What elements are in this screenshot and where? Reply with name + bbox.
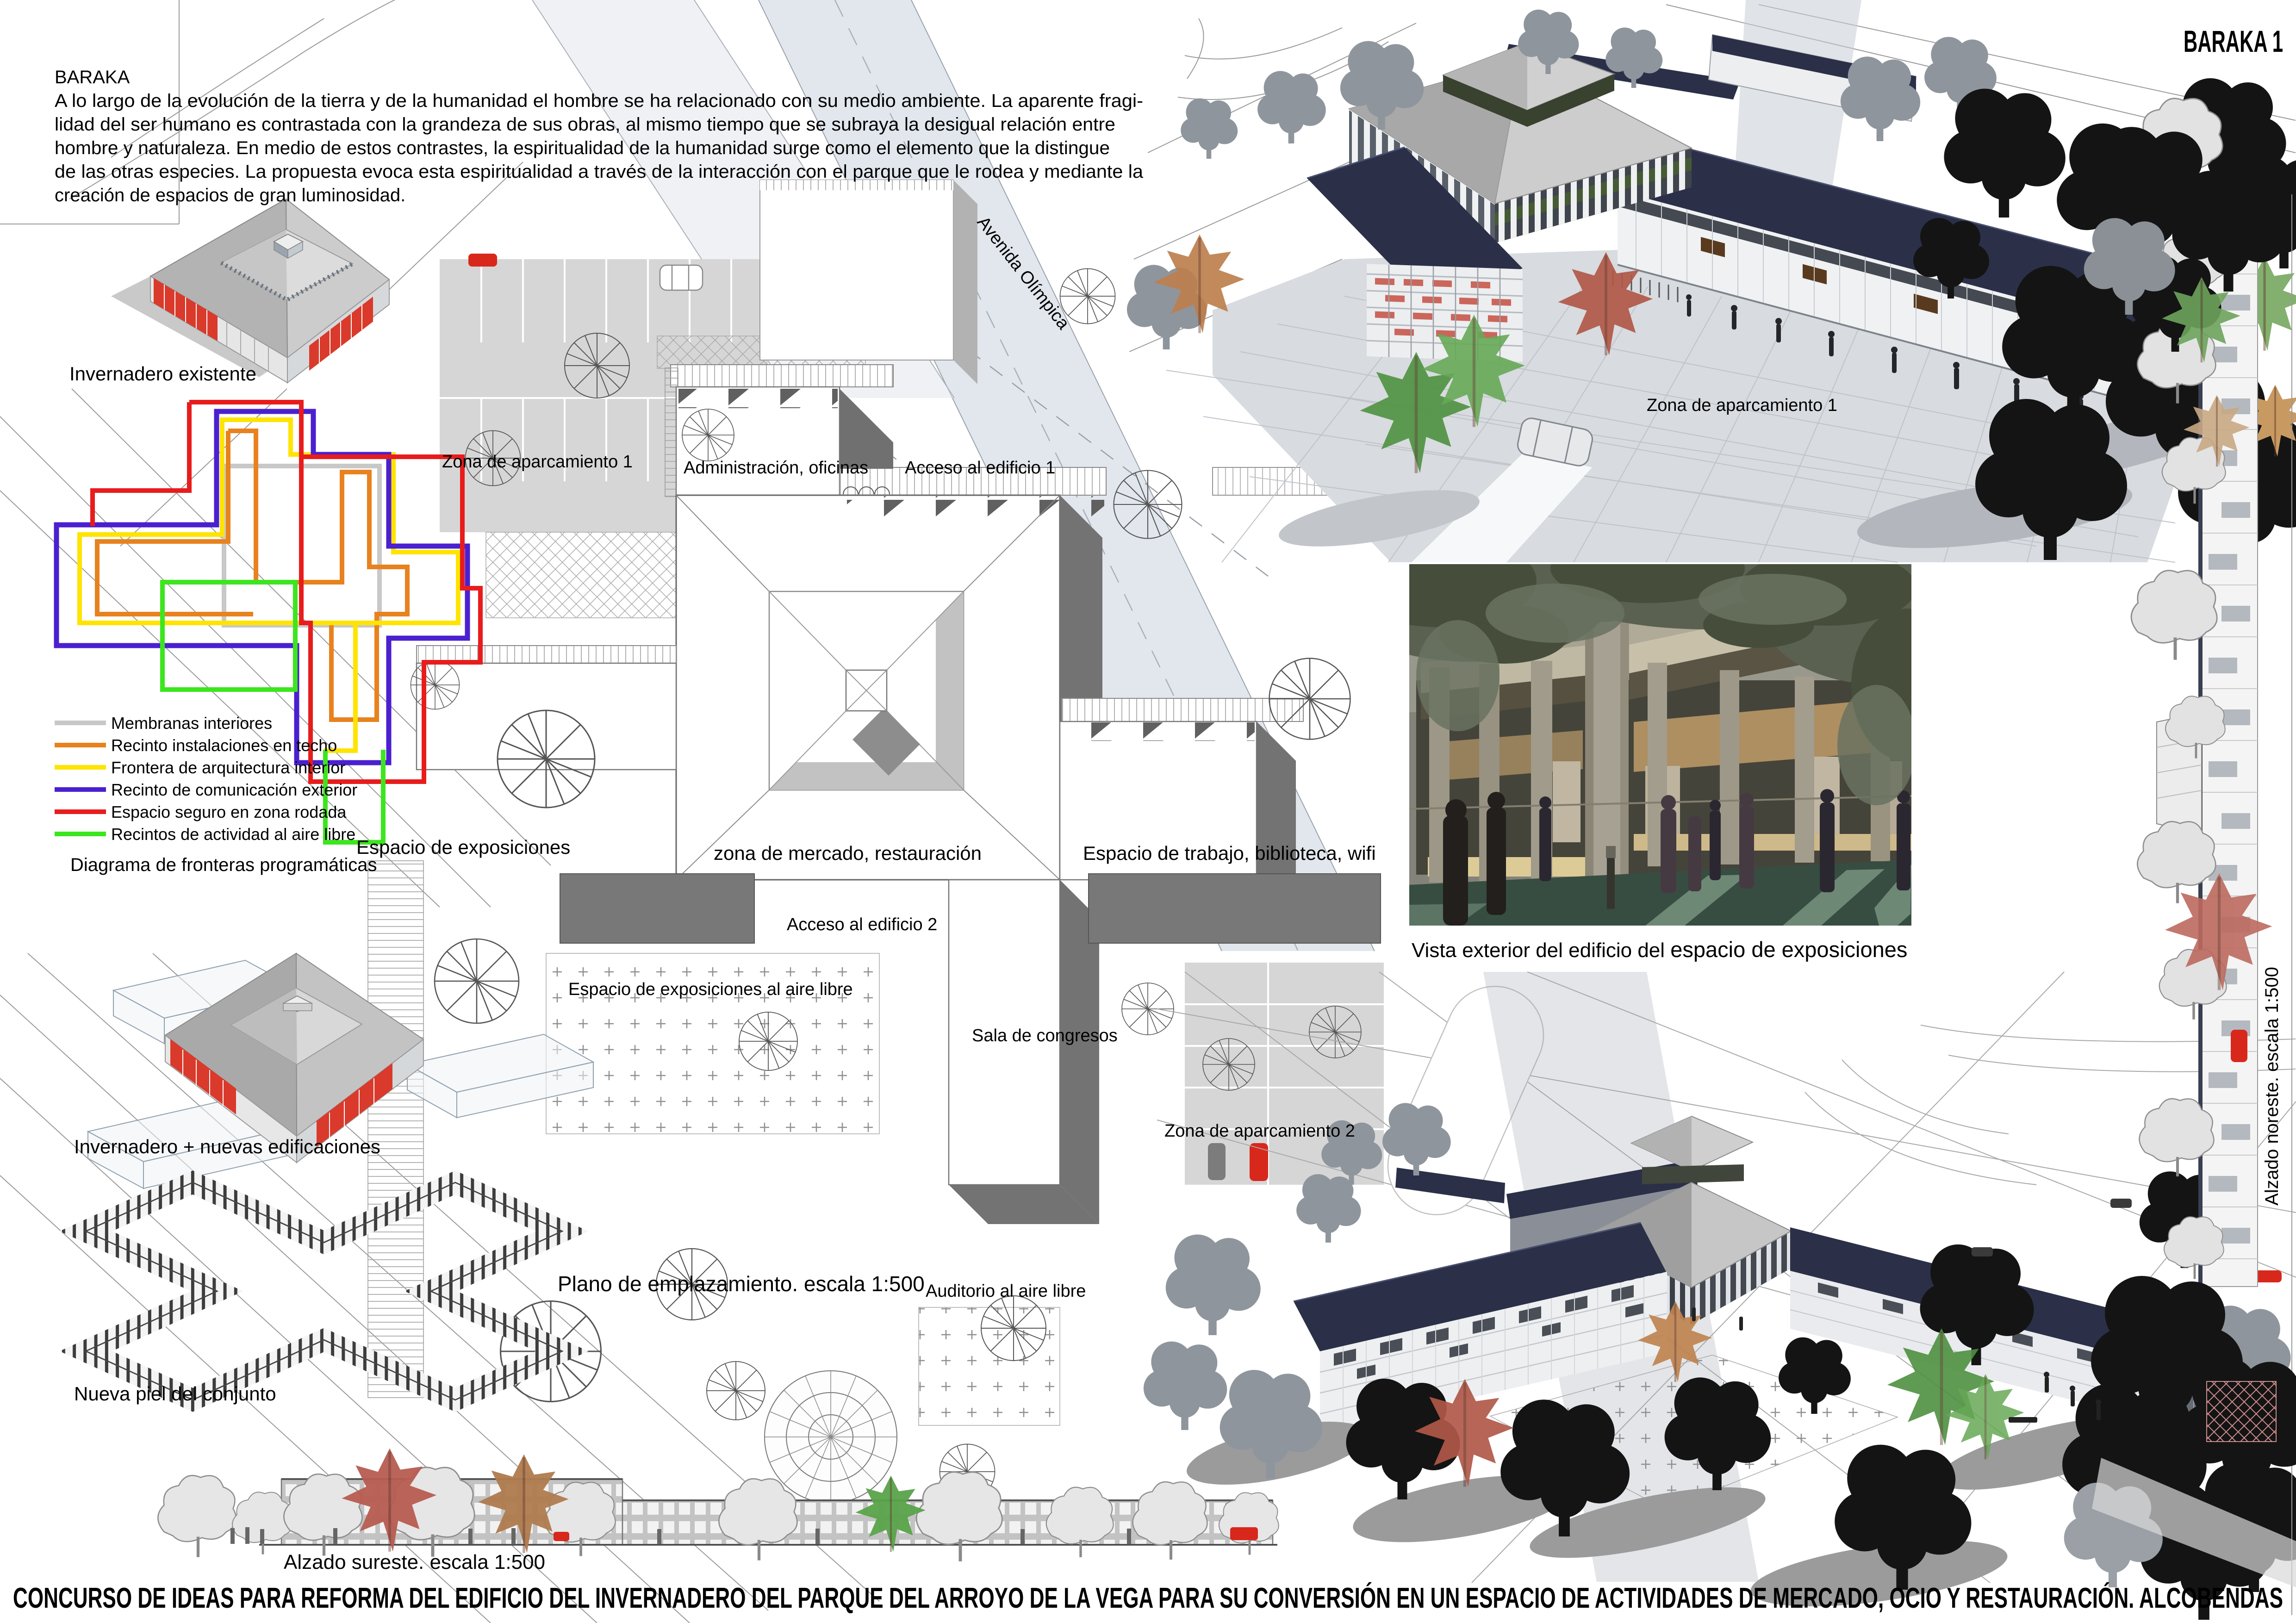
svg-text:Frontera de arquitectura inter: Frontera de arquitectura interior (111, 758, 345, 777)
svg-text:Membranas interiores: Membranas interiores (111, 714, 272, 733)
svg-text:de las otras especies. La prop: de las otras especies. La propuesta evoc… (55, 162, 1144, 182)
svg-text:Acceso al edificio 1: Acceso al edificio 1 (905, 458, 1055, 478)
svg-text:Plano de emplazamiento. escala: Plano de emplazamiento. escala 1:500 (558, 1272, 925, 1296)
svg-text:Espacio de exposiciones al air: Espacio de exposiciones al aire libre (568, 980, 853, 999)
svg-text:CONCURSO DE IDEAS PARA REFORMA: CONCURSO DE IDEAS PARA REFORMA DEL EDIFI… (13, 1582, 2283, 1614)
svg-text:Vista exterior del edificio de: Vista exterior del edificio del espacio … (1412, 937, 1907, 962)
svg-text:Recintos de actividad al aire: Recintos de actividad al aire libre (111, 825, 355, 844)
svg-text:Alzado sureste. escala 1:500: Alzado sureste. escala 1:500 (284, 1551, 545, 1573)
svg-text:hombre y naturaleza. En medio: hombre y naturaleza. En medio de estos c… (55, 138, 1110, 158)
svg-text:creación de espacios de gran l: creación de espacios de gran luminosidad… (55, 185, 405, 205)
svg-text:Acceso al edificio 2: Acceso al edificio 2 (787, 915, 937, 934)
svg-text:Zona de aparcamiento 1: Zona de aparcamiento 1 (1647, 396, 1837, 415)
svg-text:Recinto de comunicación exteri: Recinto de comunicación exterior (111, 780, 357, 799)
svg-text:Espacio seguro en zona rodada: Espacio seguro en zona rodada (111, 802, 347, 821)
svg-text:Invernadero existente: Invernadero existente (69, 363, 256, 385)
svg-text:BARAKA: BARAKA (55, 67, 130, 87)
svg-text:Espacio de trabajo, biblioteca: Espacio de trabajo, biblioteca, wifi (1083, 842, 1376, 864)
svg-text:Diagrama de fronteras programá: Diagrama de fronteras programáticas (70, 855, 377, 875)
svg-text:Nueva piel del conjunto: Nueva piel del conjunto (74, 1383, 276, 1405)
svg-text:Zona de aparcamiento 2: Zona de aparcamiento 2 (1164, 1121, 1355, 1141)
svg-text:Auditorio al aire libre: Auditorio al aire libre (926, 1281, 1086, 1301)
svg-text:A lo largo de la evolución de: A lo largo de la evolución de la tierra … (55, 91, 1143, 111)
svg-text:Sala de congresos: Sala de congresos (972, 1026, 1118, 1045)
svg-text:BARAKA 1: BARAKA 1 (2184, 24, 2283, 58)
svg-text:Zona de aparcamiento 1: Zona de aparcamiento 1 (442, 452, 633, 472)
svg-text:Invernadero + nuevas edificaci: Invernadero + nuevas edificaciones (74, 1136, 380, 1157)
svg-text:zona de mercado, restauración: zona de mercado, restauración (714, 842, 982, 864)
svg-text:Recinto instalaciones en techo: Recinto instalaciones en techo (111, 736, 337, 755)
svg-text:Alzado noreste. escala 1:500: Alzado noreste. escala 1:500 (2262, 967, 2282, 1206)
svg-text:lidad del ser humano es contra: lidad del ser humano es contrastada con … (55, 114, 1115, 135)
svg-text:Espacio de exposiciones: Espacio de exposiciones (356, 836, 570, 858)
svg-text:Administración, oficinas: Administración, oficinas (684, 458, 868, 478)
